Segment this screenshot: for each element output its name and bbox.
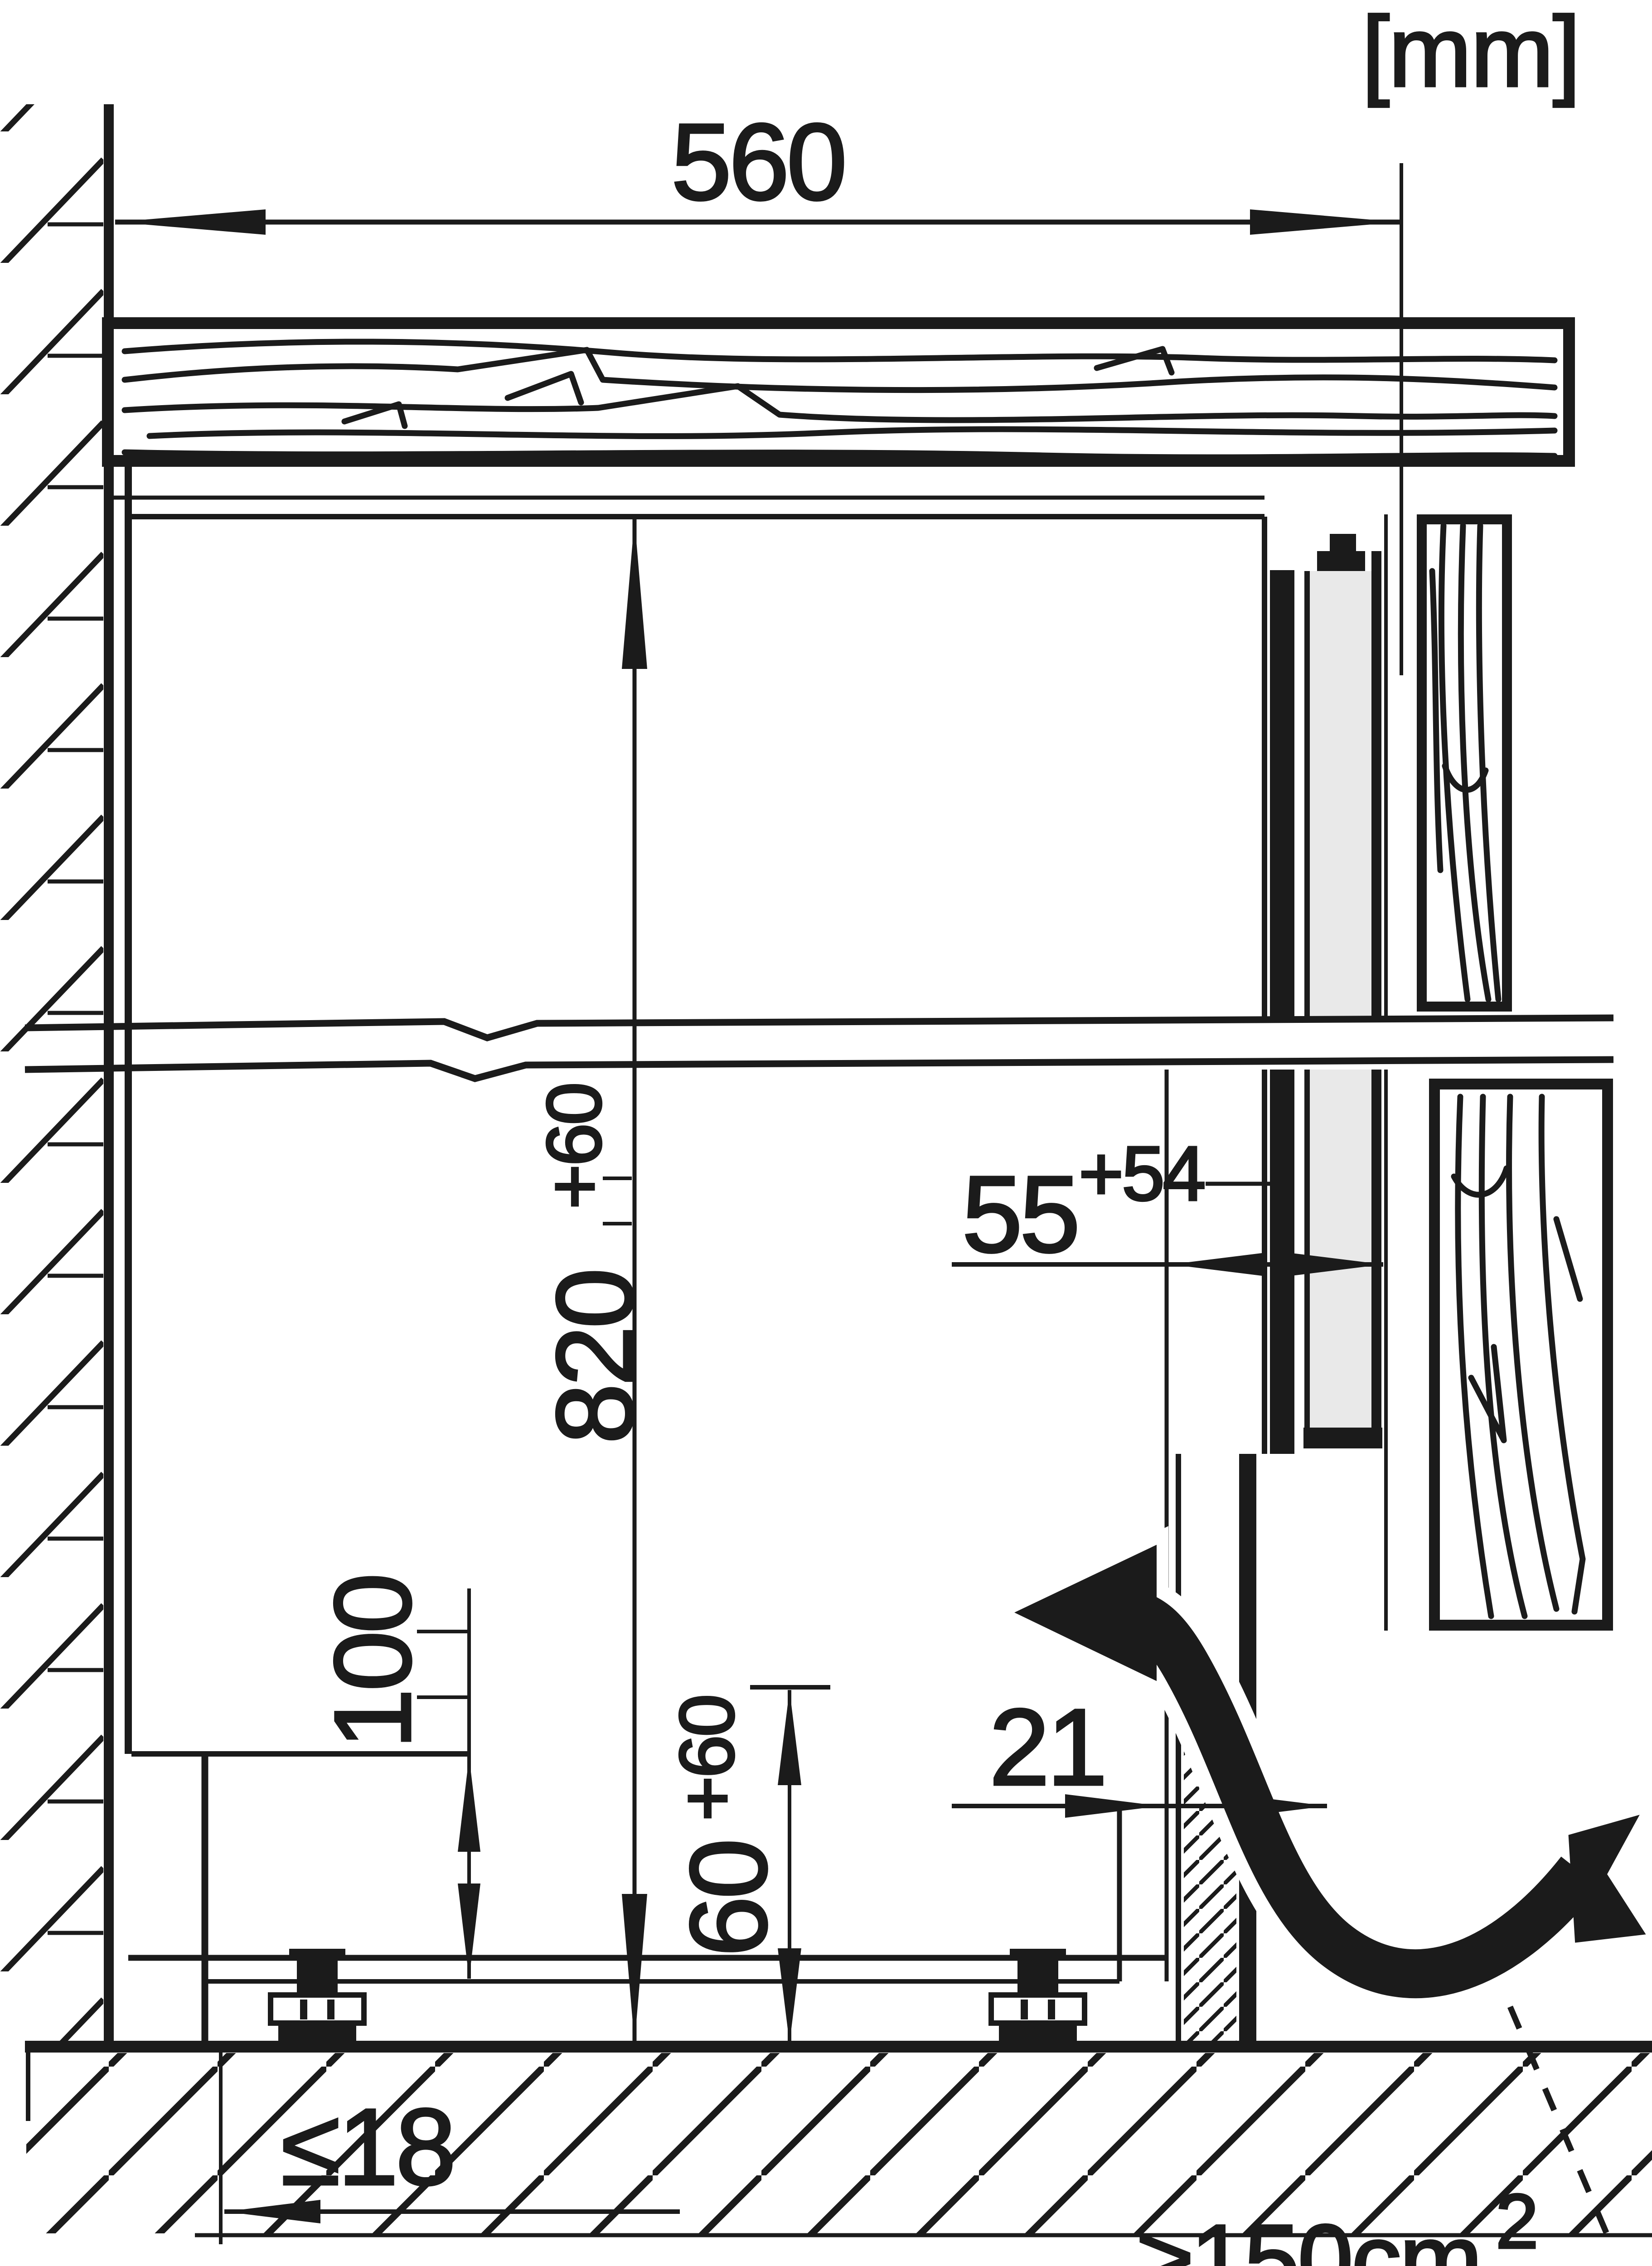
arrow-down-icon (458, 1883, 480, 1979)
dim-skirting-label: ≤18 (281, 2086, 454, 2208)
door-assembly-lower (1264, 1070, 1608, 1631)
installation-diagram: 560 820 +60 55 +54 100 60 +60 (0, 0, 1652, 2266)
wall (0, 104, 109, 2047)
arrow-left-icon (116, 209, 266, 235)
dim-vent-gap-label: 21 (989, 1686, 1105, 1808)
arrow-up-icon (622, 519, 647, 669)
adjustable-foot-right (991, 1949, 1085, 2046)
vent-area-exponent: 2 (1496, 2179, 1537, 2265)
door-assembly-upper (1264, 514, 1507, 1020)
dim-bottom-vent-tolerance: +60 (664, 1696, 750, 1821)
units-label: [mm] (1362, 0, 1580, 107)
dim-plinth-recess: 100 (312, 1576, 480, 1979)
adjustable-foot-left (271, 1949, 364, 2046)
break-line-top (25, 1018, 1613, 1038)
dim-bottom-vent-label: 60 (668, 1841, 789, 1957)
arrow-right-icon (1250, 209, 1400, 235)
door-panel-upper (1310, 571, 1371, 1020)
dim-niche-width-label: 560 (671, 101, 844, 223)
arrow-up-icon (778, 1690, 801, 1785)
door-front-edge (1371, 551, 1381, 1020)
dim-niche-height: 820 +60 (531, 519, 655, 2043)
arrow-down-icon (622, 1894, 647, 2043)
door-bottom-cap (1303, 1428, 1382, 1448)
break-lines (25, 1018, 1613, 1079)
dim-door-projection-label: 55 (962, 1153, 1078, 1275)
arrow-left-icon (1170, 1253, 1265, 1276)
wall-hatch (0, 104, 103, 2046)
hinge-cap-small (1330, 534, 1356, 551)
dim-niche-height-tolerance: +60 (531, 1084, 617, 1209)
dim-niche-height-label: 820 (534, 1271, 655, 1444)
dim-plinth-recess-label: 100 (312, 1576, 433, 1749)
door-panel-lower (1310, 1070, 1371, 1428)
dim-door-projection-tolerance: +54 (1079, 1131, 1204, 1217)
vent-area-label: ≥150cm (1138, 2204, 1481, 2266)
worktop (108, 323, 1569, 461)
hinge-cap (1317, 551, 1365, 571)
dim-bottom-vent: 60 +60 (664, 1687, 830, 2043)
arrow-down-icon (778, 1948, 801, 2043)
diagram-svg: 560 820 +60 55 +54 100 60 +60 (0, 0, 1652, 2266)
arrow-up-icon (458, 1757, 480, 1852)
hinge-plate (1270, 570, 1294, 1020)
